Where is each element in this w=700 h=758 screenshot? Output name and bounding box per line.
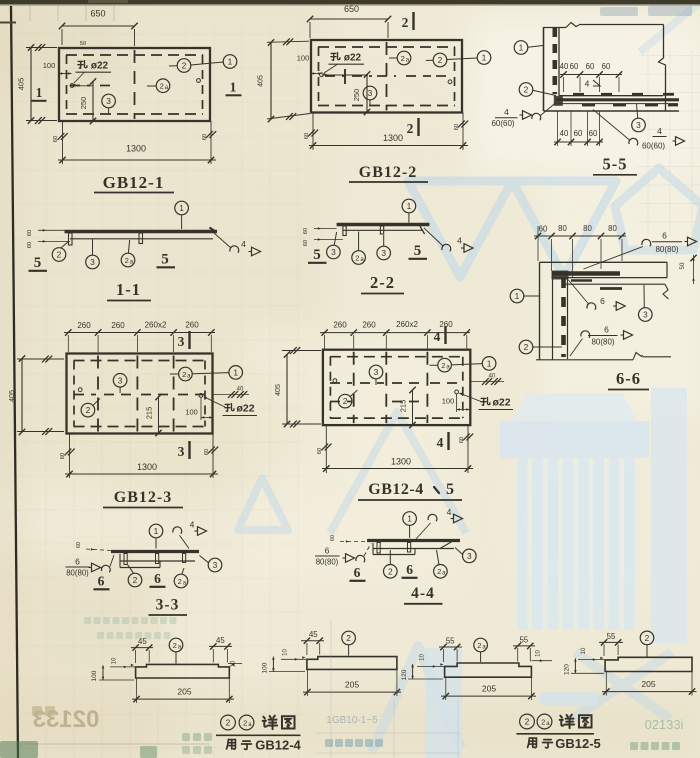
svg-text:205: 205 <box>345 680 359 690</box>
svg-text:ø22: ø22 <box>344 53 362 64</box>
svg-text:260: 260 <box>185 321 199 330</box>
svg-text:60: 60 <box>53 136 59 142</box>
svg-text:260: 260 <box>111 321 125 330</box>
svg-text:80: 80 <box>608 224 617 233</box>
svg-text:2: 2 <box>388 566 393 576</box>
svg-text:6: 6 <box>75 557 80 567</box>
svg-text:80(80): 80(80) <box>591 338 614 347</box>
svg-text:6: 6 <box>600 296 605 306</box>
svg-text:60: 60 <box>317 448 323 454</box>
svg-text:1: 1 <box>228 57 233 67</box>
svg-text:3: 3 <box>106 96 111 106</box>
svg-text:3: 3 <box>118 375 123 385</box>
svg-text:45: 45 <box>309 630 318 639</box>
svg-text:02133: 02133 <box>33 706 100 733</box>
svg-text:250: 250 <box>352 89 361 102</box>
svg-text:260: 260 <box>77 321 91 330</box>
svg-text:GB12-5: GB12-5 <box>555 736 601 751</box>
svg-text:80(80): 80(80) <box>66 569 89 578</box>
svg-text:60(60): 60(60) <box>491 119 514 128</box>
svg-text:2: 2 <box>160 82 164 91</box>
svg-text:5: 5 <box>161 252 169 268</box>
svg-text:55: 55 <box>607 632 616 641</box>
svg-text:2-2: 2-2 <box>370 273 395 292</box>
svg-text:55: 55 <box>446 636 455 645</box>
svg-text:3: 3 <box>213 560 218 570</box>
svg-text:2: 2 <box>57 250 62 260</box>
svg-text:2: 2 <box>173 641 177 650</box>
svg-text:1300: 1300 <box>126 144 146 154</box>
svg-text:1300: 1300 <box>391 457 411 467</box>
svg-text:40: 40 <box>237 387 244 393</box>
svg-text:60: 60 <box>459 437 465 443</box>
svg-text:1: 1 <box>482 53 487 63</box>
svg-text:5: 5 <box>446 481 454 498</box>
svg-text:5: 5 <box>313 247 321 263</box>
svg-text:4: 4 <box>437 435 444 450</box>
svg-text:2: 2 <box>541 717 545 726</box>
svg-text:6: 6 <box>406 562 413 577</box>
svg-text:2: 2 <box>178 577 182 586</box>
svg-text:4: 4 <box>657 126 662 136</box>
svg-text:2: 2 <box>437 567 441 576</box>
svg-text:GB12-4: GB12-4 <box>255 738 301 753</box>
svg-text:3: 3 <box>331 247 336 257</box>
svg-text:40: 40 <box>560 62 569 71</box>
svg-text:3-3: 3-3 <box>156 597 180 614</box>
svg-text:2: 2 <box>402 15 409 30</box>
svg-text:ø22: ø22 <box>492 397 510 409</box>
svg-text:6: 6 <box>604 325 609 335</box>
svg-text:60: 60 <box>574 129 583 138</box>
svg-text:2: 2 <box>182 61 187 71</box>
svg-text:4: 4 <box>504 107 509 117</box>
svg-text:100: 100 <box>262 662 269 673</box>
svg-text:215: 215 <box>399 400 408 413</box>
svg-text:250: 250 <box>79 97 88 110</box>
svg-text:1300: 1300 <box>383 133 403 143</box>
svg-text:3: 3 <box>90 257 95 267</box>
svg-text:60: 60 <box>204 449 210 455</box>
svg-text:10: 10 <box>283 649 289 656</box>
svg-text:1: 1 <box>487 359 492 369</box>
svg-text:50: 50 <box>679 262 686 269</box>
svg-text:2: 2 <box>86 405 91 415</box>
svg-text:2: 2 <box>524 85 529 95</box>
svg-text:10: 10 <box>112 657 118 664</box>
svg-text:60: 60 <box>76 542 82 548</box>
svg-text:6: 6 <box>325 546 330 556</box>
svg-text:205: 205 <box>641 679 655 689</box>
svg-text:2: 2 <box>438 55 443 65</box>
svg-text:60: 60 <box>303 228 309 234</box>
svg-text:3: 3 <box>467 551 472 561</box>
svg-text:2: 2 <box>645 633 650 643</box>
svg-text:1: 1 <box>515 291 520 301</box>
svg-text:80(80): 80(80) <box>655 245 678 254</box>
svg-text:GB12-3: GB12-3 <box>114 489 172 506</box>
svg-text:3: 3 <box>178 444 185 459</box>
svg-text:60: 60 <box>539 225 548 234</box>
svg-text:40: 40 <box>560 129 569 138</box>
svg-text:2: 2 <box>125 256 129 265</box>
svg-text:260: 260 <box>362 321 376 330</box>
svg-text:650: 650 <box>344 4 359 14</box>
svg-text:60: 60 <box>602 62 611 71</box>
svg-text:5: 5 <box>34 255 42 271</box>
svg-text:1: 1 <box>230 80 237 95</box>
svg-text:60: 60 <box>27 230 33 236</box>
svg-text:60: 60 <box>454 124 460 130</box>
svg-text:6: 6 <box>154 571 161 586</box>
svg-text:405: 405 <box>9 390 16 402</box>
svg-text:650: 650 <box>90 9 105 19</box>
svg-text:ø22: ø22 <box>91 61 109 72</box>
svg-text:260x2: 260x2 <box>396 320 418 329</box>
svg-text:60: 60 <box>303 240 309 246</box>
svg-text:40: 40 <box>489 374 496 380</box>
svg-text:60: 60 <box>330 535 336 541</box>
svg-text:80: 80 <box>558 224 567 233</box>
svg-text:GB12-1: GB12-1 <box>103 173 165 192</box>
svg-text:2: 2 <box>441 361 445 370</box>
svg-text:60: 60 <box>27 242 33 248</box>
svg-text:4: 4 <box>585 79 590 89</box>
svg-text:1: 1 <box>36 85 43 100</box>
svg-text:100: 100 <box>297 54 310 63</box>
svg-text:260: 260 <box>333 321 347 330</box>
svg-text:2: 2 <box>346 633 351 643</box>
svg-text:60: 60 <box>586 62 595 71</box>
svg-text:60: 60 <box>202 134 208 140</box>
svg-text:1: 1 <box>407 514 412 524</box>
svg-text:100: 100 <box>43 61 56 70</box>
svg-text:10: 10 <box>581 647 587 654</box>
svg-text:10: 10 <box>420 654 426 661</box>
svg-text:45: 45 <box>216 636 225 645</box>
svg-text:1GB10-1~5: 1GB10-1~5 <box>326 715 378 726</box>
svg-text:2: 2 <box>243 718 247 727</box>
svg-text:6: 6 <box>662 231 667 241</box>
svg-text:60: 60 <box>589 129 598 138</box>
svg-text:100: 100 <box>185 408 198 417</box>
svg-text:205: 205 <box>177 687 191 697</box>
svg-text:1: 1 <box>179 203 184 213</box>
svg-text:3: 3 <box>636 120 641 130</box>
svg-text:4: 4 <box>447 507 452 517</box>
svg-text:5-5: 5-5 <box>603 155 628 174</box>
svg-text:60: 60 <box>304 133 310 139</box>
svg-text:405: 405 <box>275 384 282 396</box>
svg-text:60: 60 <box>570 62 579 71</box>
svg-text:ø22: ø22 <box>236 403 254 415</box>
svg-text:1: 1 <box>233 368 238 378</box>
svg-text:2: 2 <box>226 718 231 728</box>
svg-text:4: 4 <box>241 239 246 249</box>
svg-text:2: 2 <box>477 641 481 650</box>
svg-text:2: 2 <box>401 54 405 63</box>
svg-text:2: 2 <box>182 370 186 379</box>
svg-text:2: 2 <box>525 717 530 727</box>
svg-text:60(60): 60(60) <box>642 142 665 151</box>
svg-text:4: 4 <box>457 236 462 246</box>
svg-text:GB12-2: GB12-2 <box>359 164 417 181</box>
svg-text:2: 2 <box>355 253 359 262</box>
svg-text:02133i: 02133i <box>644 717 683 732</box>
svg-text:260x2: 260x2 <box>145 321 167 330</box>
svg-text:405: 405 <box>17 78 26 91</box>
svg-text:55: 55 <box>519 635 528 644</box>
svg-text:100: 100 <box>91 670 98 681</box>
svg-text:6-6: 6-6 <box>616 369 641 388</box>
svg-text:3: 3 <box>643 310 648 320</box>
svg-text:1-1: 1-1 <box>116 280 141 299</box>
svg-text:1: 1 <box>519 43 524 53</box>
svg-text:2: 2 <box>343 396 348 406</box>
svg-text:2: 2 <box>133 575 138 585</box>
svg-text:3: 3 <box>178 334 185 349</box>
svg-text:100: 100 <box>442 397 455 406</box>
svg-text:120: 120 <box>401 669 408 680</box>
svg-text:3: 3 <box>381 248 386 258</box>
svg-text:4: 4 <box>190 520 195 530</box>
svg-text:1300: 1300 <box>137 462 157 472</box>
svg-text:4: 4 <box>434 329 441 344</box>
svg-text:215: 215 <box>145 407 154 420</box>
svg-text:3: 3 <box>368 88 373 98</box>
svg-text:6: 6 <box>98 574 105 589</box>
svg-text:80(80): 80(80) <box>316 558 339 567</box>
svg-text:3: 3 <box>374 367 379 377</box>
svg-text:GB12-4: GB12-4 <box>368 481 423 498</box>
svg-text:60: 60 <box>60 453 66 459</box>
svg-text:120: 120 <box>564 664 571 675</box>
svg-text:10: 10 <box>536 650 542 657</box>
svg-text:6: 6 <box>354 565 361 580</box>
svg-text:1: 1 <box>407 201 412 211</box>
svg-text:2: 2 <box>407 121 414 136</box>
svg-text:50: 50 <box>80 41 86 47</box>
svg-text:4-4: 4-4 <box>411 585 435 602</box>
svg-text:5: 5 <box>414 243 422 259</box>
svg-text:80: 80 <box>583 224 592 233</box>
svg-text:205: 205 <box>482 683 496 693</box>
svg-text:2: 2 <box>524 342 529 352</box>
svg-text:405: 405 <box>258 75 265 87</box>
svg-text:1: 1 <box>154 526 159 536</box>
